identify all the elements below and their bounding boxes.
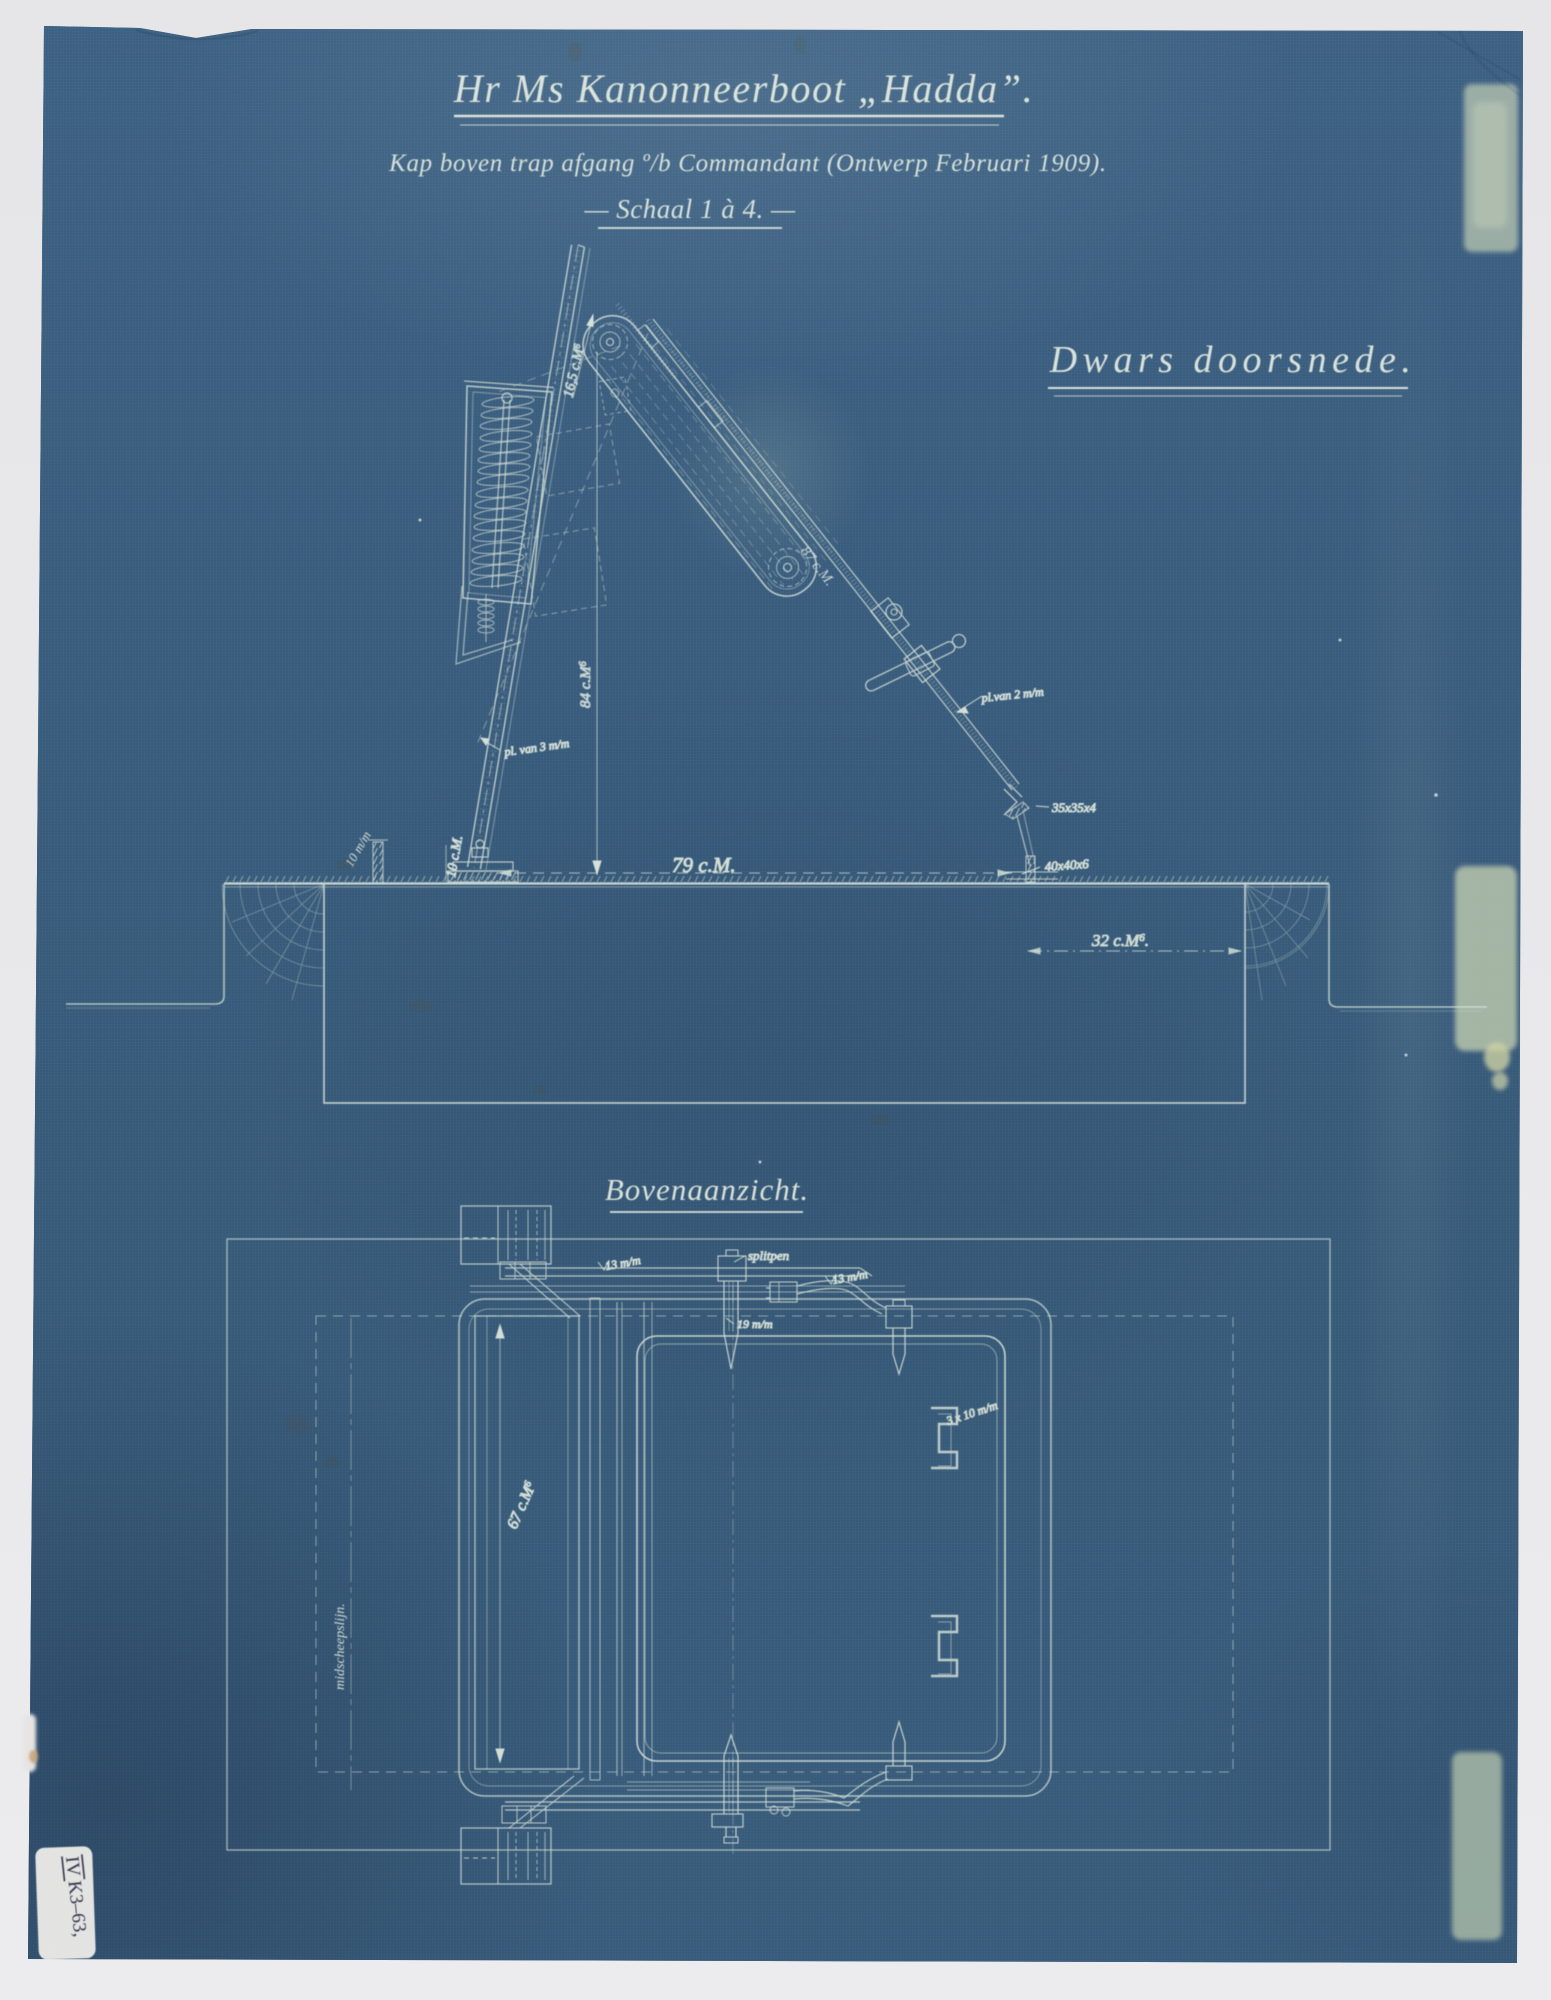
svg-text:Dwars doorsnede.: Dwars doorsnede. [1049, 339, 1417, 381]
svg-text:Bovenaanzicht.: Bovenaanzicht. [605, 1172, 809, 1207]
svg-text:67 c.M6: 67 c.M6 [504, 1480, 540, 1532]
svg-text:3 x 10 m/m: 3 x 10 m/m [944, 1398, 1000, 1428]
svg-text:32 c.M6.: 32 c.M6. [1091, 931, 1149, 950]
svg-text:pl.van 2 m/m: pl.van 2 m/m [980, 685, 1045, 706]
svg-text:Kap boven trap afgang º/b Comm: Kap boven trap afgang º/b Commandant (On… [388, 150, 1107, 177]
svg-text:16,5 c.M6: 16,5 c.M6 [560, 342, 588, 399]
svg-text:19 m/m: 19 m/m [737, 1317, 773, 1331]
svg-text:— Schaal 1 à 4. —: — Schaal 1 à 4. — [584, 194, 796, 224]
svg-text:Hr Ms Kanonneerboot „Hadda”.: Hr Ms Kanonneerboot „Hadda”. [453, 66, 1034, 111]
svg-text:40x40x6: 40x40x6 [1044, 856, 1089, 874]
svg-text:13 m/m: 13 m/m [831, 1267, 869, 1287]
svg-text:35x35x4: 35x35x4 [1051, 800, 1097, 815]
svg-text:13 m/m: 13 m/m [604, 1253, 642, 1273]
svg-text:84 c.M6: 84 c.M6 [578, 661, 594, 708]
svg-text:splitpen: splitpen [748, 1248, 789, 1263]
svg-text:79 c.M.: 79 c.M. [672, 853, 736, 877]
svg-text:pl. van 3 m/m: pl. van 3 m/m [502, 736, 570, 759]
svg-text:midscheepslijn.: midscheepslijn. [333, 1603, 348, 1690]
